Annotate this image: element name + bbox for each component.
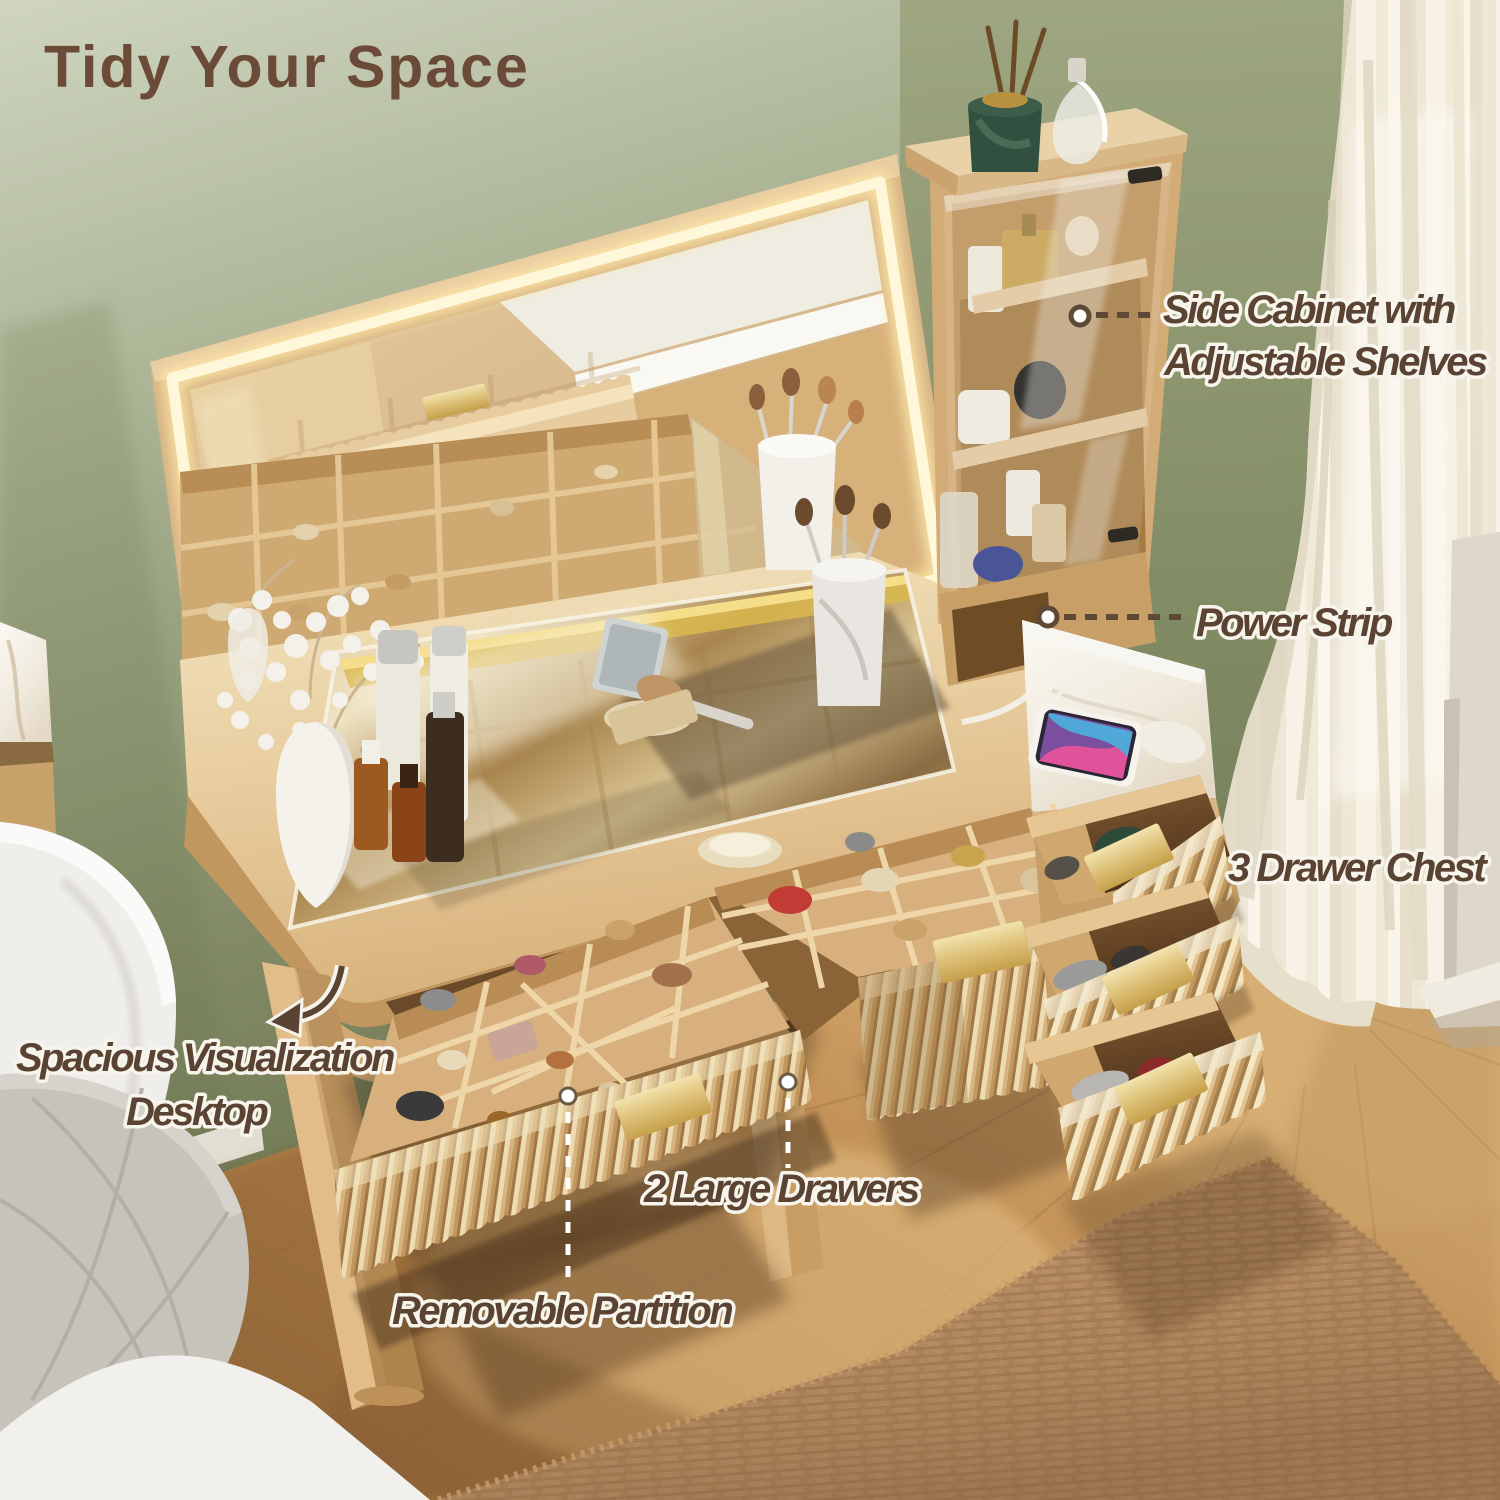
svg-text:Tidy Your Space: Tidy Your Space [44,34,530,100]
svg-text:Spacious Visualization: Spacious Visualization [16,1036,394,1080]
svg-text:Desktop: Desktop [126,1090,268,1134]
svg-text:Power Strip: Power Strip [1196,601,1393,645]
svg-text:Adjustable Shelves: Adjustable Shelves [1163,340,1487,384]
svg-text:2 Large Drawers: 2 Large Drawers [643,1167,919,1211]
svg-text:Removable Partition: Removable Partition [392,1289,732,1333]
svg-text:Side Cabinet with: Side Cabinet with [1163,288,1455,332]
svg-text:3 Drawer Chest: 3 Drawer Chest [1228,846,1488,890]
